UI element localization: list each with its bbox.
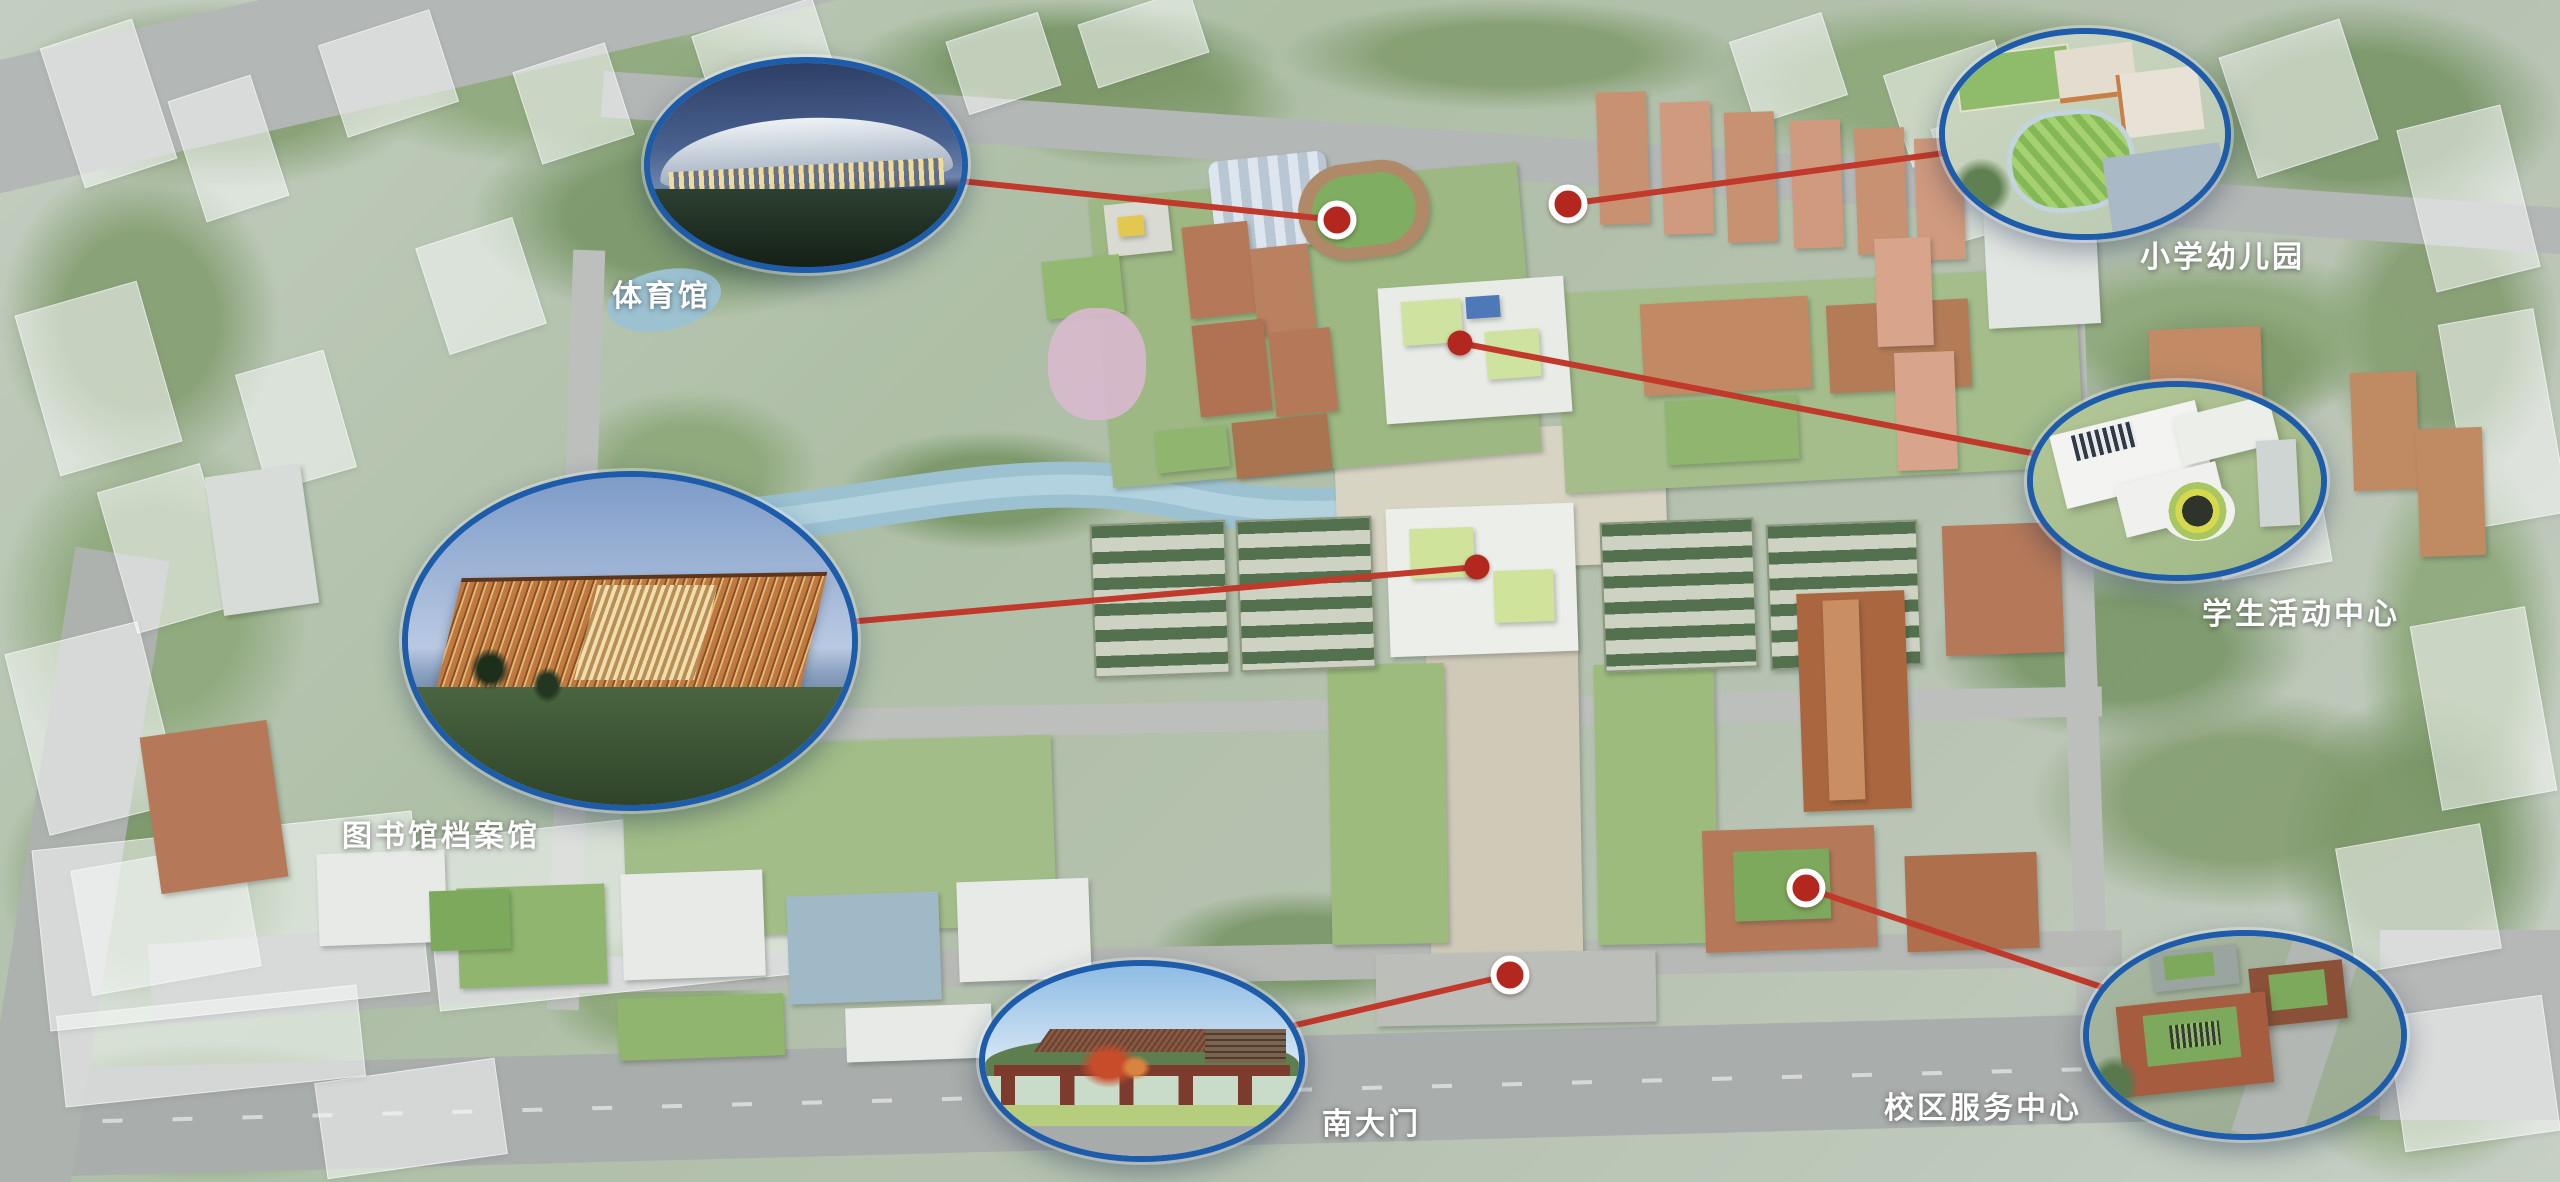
- callout-south-gate: [979, 960, 1305, 1162]
- campus-service-center-rendering: [2089, 936, 2401, 1134]
- south-gate-rendering: [985, 966, 1299, 1156]
- callout-library-archives: [402, 471, 858, 811]
- primary-school-rendering: [1945, 34, 2225, 234]
- label-student-activity-center: 学生活动中心: [2202, 598, 2400, 632]
- label-library-archives: 图书馆档案馆: [342, 820, 540, 854]
- callout-student-activity-center: [2027, 381, 2327, 581]
- callout-campus-service-center: [2083, 930, 2407, 1140]
- callout-primary-school-kindergarten: [1939, 28, 2231, 240]
- library-rendering: [408, 477, 852, 805]
- gymnasium-rendering: [650, 63, 962, 267]
- student-activity-center-rendering: [2033, 387, 2321, 575]
- callout-gymnasium: [644, 57, 968, 273]
- label-campus-service-center: 校区服务中心: [1884, 1092, 2082, 1126]
- marker-dot-campus-service-center: [1787, 869, 1826, 908]
- marker-dot-south-gate: [1491, 956, 1530, 995]
- label-gymnasium: 体育馆: [612, 280, 711, 314]
- marker-dot-student-activity-center: [1448, 331, 1473, 356]
- marker-dot-library-archives: [1465, 555, 1490, 580]
- marker-dot-primary-school-kindergarten: [1549, 185, 1588, 224]
- marker-dot-gymnasium: [1318, 201, 1357, 240]
- label-primary-school-kindergarten: 小学幼儿园: [2140, 241, 2305, 275]
- label-south-gate: 南大门: [1322, 1108, 1421, 1142]
- campus-masterplan-canvas: 体育馆 小学幼儿园 学生活动中心 图书馆档案馆 南大门 校区服务中心: [0, 0, 2560, 1182]
